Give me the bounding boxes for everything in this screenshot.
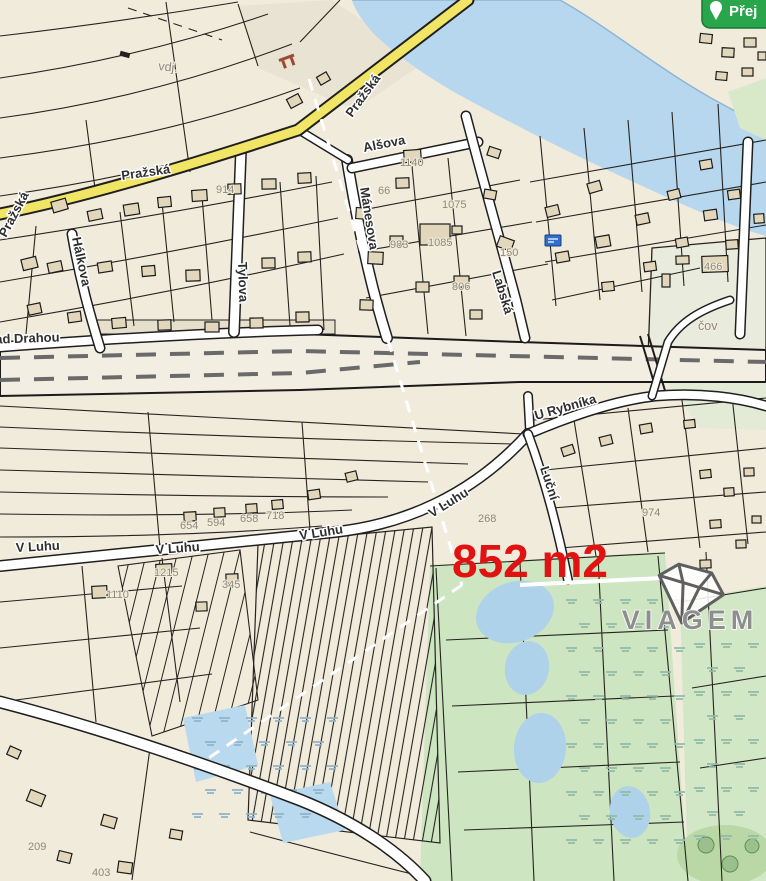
house-number: 268 [478,513,496,525]
info-sign-icon [545,235,561,246]
building [262,258,275,268]
building [214,508,225,518]
building [742,68,753,76]
street-label: čov [698,319,718,333]
area-measurement-label: 852 m2 [452,535,608,587]
building [700,33,713,43]
building [307,489,320,500]
street-label: Tylova [235,262,251,303]
house-number: 806 [452,281,470,293]
plot-green [420,552,688,881]
building [250,318,263,328]
building [97,261,112,273]
building [716,72,728,81]
building [360,300,373,310]
house-number: 718 [266,510,284,522]
building [639,423,652,434]
building [662,274,670,287]
building [196,602,207,611]
building [416,282,429,292]
building [744,468,754,476]
street-label: V Luhu [155,539,200,557]
building [262,179,276,189]
building [684,419,696,428]
building [710,520,722,529]
building [754,214,765,224]
building [452,226,462,234]
building [298,252,311,262]
building [752,516,761,523]
building [396,178,409,188]
building [246,504,258,514]
building [298,173,312,184]
house-number: 658 [240,513,258,525]
building [602,281,615,291]
building [368,252,384,265]
building [635,213,650,225]
house-number: 1075 [442,199,466,211]
house-number: 209 [28,841,46,853]
building [123,203,140,216]
building [700,560,711,568]
building [724,488,735,497]
building [142,265,156,276]
building [483,189,496,200]
house-number: 654 [180,520,198,532]
house-number: 1110 [106,589,129,601]
goto-map-button[interactable]: Přej [702,0,766,28]
house-number: 974 [642,507,660,519]
house-number: 1215 [154,567,178,579]
building [158,196,172,207]
house-number: 66 [378,185,390,197]
building [744,38,756,47]
building [727,189,740,200]
building [205,322,219,332]
house-number: 403 [92,867,110,879]
building [87,209,103,222]
building [699,159,712,170]
building [758,52,766,60]
building [47,261,63,274]
building [192,189,208,201]
building [595,235,611,248]
house-number: 983 [390,239,408,251]
house-number: 914 [216,184,234,196]
building [169,829,182,840]
street-label: vdj. [158,59,179,75]
goto-map-button-label: Přej [729,3,757,20]
building [272,500,284,510]
house-number: 594 [207,517,225,529]
map-canvas[interactable]: PražskáPražskáPražskáNad DrahouAlšovaMán… [0,0,766,881]
building [676,256,689,264]
building [736,540,746,548]
building [158,320,171,330]
building [555,251,570,263]
building [700,469,712,478]
watermark-text: VIAGEM [622,605,759,635]
road-tylova [234,150,241,332]
building [117,861,132,874]
building [722,48,734,58]
house-number: 150 [500,247,518,259]
house-number: 345 [222,579,240,591]
house-number: 1085 [428,237,452,249]
street-label: V Luhu [15,538,60,555]
building [92,586,108,599]
building [186,270,200,281]
building [703,209,717,221]
building [67,311,81,323]
building [470,310,482,319]
building [643,261,656,272]
building [27,303,42,315]
building [112,317,127,328]
house-number: 466 [704,261,722,273]
building [675,237,688,248]
map-viewport[interactable]: PražskáPražskáPražskáNad DrahouAlšovaMán… [0,0,766,881]
building [726,240,739,250]
building [296,312,309,322]
house-number: 1140 [400,157,424,169]
building [345,471,358,482]
street-label: Nad Drahou [0,329,60,347]
